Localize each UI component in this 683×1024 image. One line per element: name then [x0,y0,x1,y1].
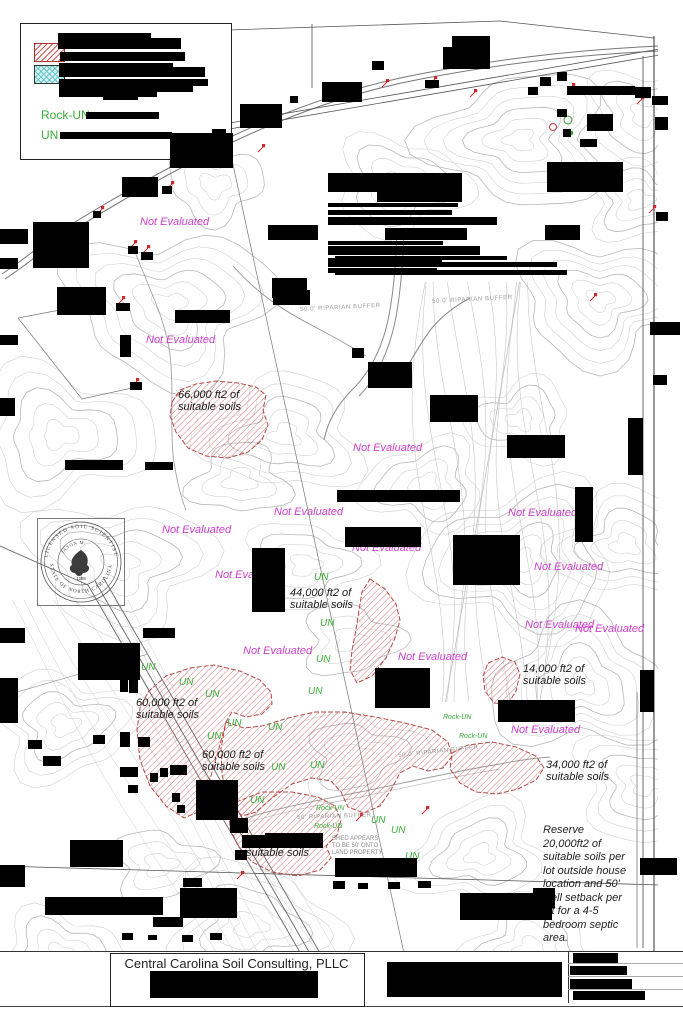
contour-line [29,404,98,467]
sample-marker [171,181,174,184]
sample-marker [237,874,242,879]
contour-line [395,793,558,906]
suitable-soil-area [170,381,268,458]
contour-line [438,497,584,622]
contour-line [586,290,616,313]
revision-row-line [568,989,683,990]
sample-marker [641,96,644,99]
sample-marker [101,206,104,209]
company-name: Central Carolina Soil Consulting, PLLC [110,956,363,971]
sample-marker [356,816,361,821]
contour-line [8,681,132,776]
sample-marker [134,240,137,243]
sample-marker [167,184,172,189]
sample-marker [649,208,654,213]
seal-emblem [70,550,89,576]
sample-marker [430,79,435,84]
contour-line [115,600,337,985]
contour-line [447,282,476,702]
road-edge [5,241,55,279]
contour-line [356,145,459,227]
revision-row-line [568,963,683,964]
title-block-divider [568,951,569,1003]
contour-line [0,670,149,789]
sample-marker [434,76,437,79]
sample-marker [653,205,656,208]
contour-line [0,372,137,497]
contour-line [429,818,527,886]
point-marker [550,124,557,131]
contour-line [463,843,496,866]
north-boundary-line [228,21,654,38]
sample-marker [386,79,389,82]
contour-line [275,544,343,587]
right-margin [658,0,683,1024]
contour-line [423,282,455,702]
contour-line [462,107,562,172]
contour-line [260,534,362,599]
contour-line [390,459,452,510]
contour-line [221,467,259,490]
soil-evaluation-map-sheet: Rock-UN UN LICENSED SOIL SCIENTIST STATE… [0,0,683,1024]
contour-line [23,692,116,763]
contour-line [465,282,497,702]
sample-marker [132,381,137,386]
contour-line [505,408,532,431]
contour-line [558,270,648,338]
sample-marker [147,245,150,248]
suitable-soil-area [350,579,400,683]
legend-box: Rock-UN UN [20,23,232,160]
contour-line [608,533,641,555]
contour-line [133,282,208,336]
contour-line [446,830,511,875]
contour-line [536,642,624,715]
revision-row-line [568,976,683,977]
reserve-soils-note: Reserve 20,000ft2 of suitable soils per … [543,824,657,946]
survey-line [18,310,60,318]
contour-line [45,419,80,450]
sample-marker [258,147,263,152]
point-marker [569,131,573,135]
contour-line [385,172,419,199]
contour-line [58,235,283,397]
contour-line [506,614,653,736]
contour-line [114,270,226,351]
sample-marker [130,243,135,248]
contour-line [200,174,232,201]
stream-line [410,298,470,362]
suitable-soil-area [229,792,341,876]
contour-line [528,282,560,702]
sample-marker [474,89,477,92]
contour-line [572,280,632,325]
contour-line [95,258,245,366]
sample-marker [426,806,429,809]
contour-line [412,805,542,895]
contour-line [475,385,556,455]
contour-line [455,509,572,609]
legend-un-label: UN [41,128,58,142]
suitable-soil-hatch-swatch [34,43,65,62]
contour-line [454,282,486,702]
seal-number: 1288 [76,576,86,581]
road-edge [2,236,52,274]
stream-line [233,266,366,356]
title-block-top-border [0,951,683,952]
contour-line [591,521,656,565]
contour-line [406,471,610,646]
sample-marker [122,296,125,299]
contour-line [496,282,527,702]
contour-line [371,158,440,213]
sample-marker [262,144,265,147]
sample-marker [572,83,575,86]
suitable-soil-area [450,742,544,794]
survey-line [0,654,148,697]
sample-marker [360,813,363,816]
sample-marker [241,871,244,874]
sample-marker [637,99,642,104]
sample-marker [143,248,148,253]
provisionally-suitable-swatch [34,65,65,84]
stream-line [359,230,404,396]
sample-marker [136,378,139,381]
sample-marker [470,92,475,97]
contour-line [504,547,533,572]
contour-line [433,282,465,702]
contour-line [460,373,567,466]
sample-marker [590,296,595,301]
contour-line [565,671,594,696]
legend-rock-un-label: Rock-UN [41,108,90,122]
contour-line [290,555,324,577]
contour-line [501,129,534,151]
contour-line [424,85,590,194]
contour-line [266,422,302,445]
stream-line [324,230,397,440]
contour-line [169,151,264,231]
contour-line [628,189,657,210]
sample-marker [422,809,427,814]
contour-line [51,714,82,738]
licensed-soil-scientist-seal: LICENSED SOIL SCIENTIST STATE OF NORTH C… [37,518,125,606]
contour-line [373,446,466,522]
contour-line [487,535,545,585]
contour-line [486,282,517,702]
point-marker [564,116,572,124]
suitable-soil-areas-layer [137,381,544,876]
contour-line [408,472,439,497]
contour-line [144,853,180,877]
contour-line [471,522,559,597]
sample-marker [594,293,597,296]
contour-line [412,282,444,702]
contour-line [0,356,156,513]
point-marker [558,112,561,115]
